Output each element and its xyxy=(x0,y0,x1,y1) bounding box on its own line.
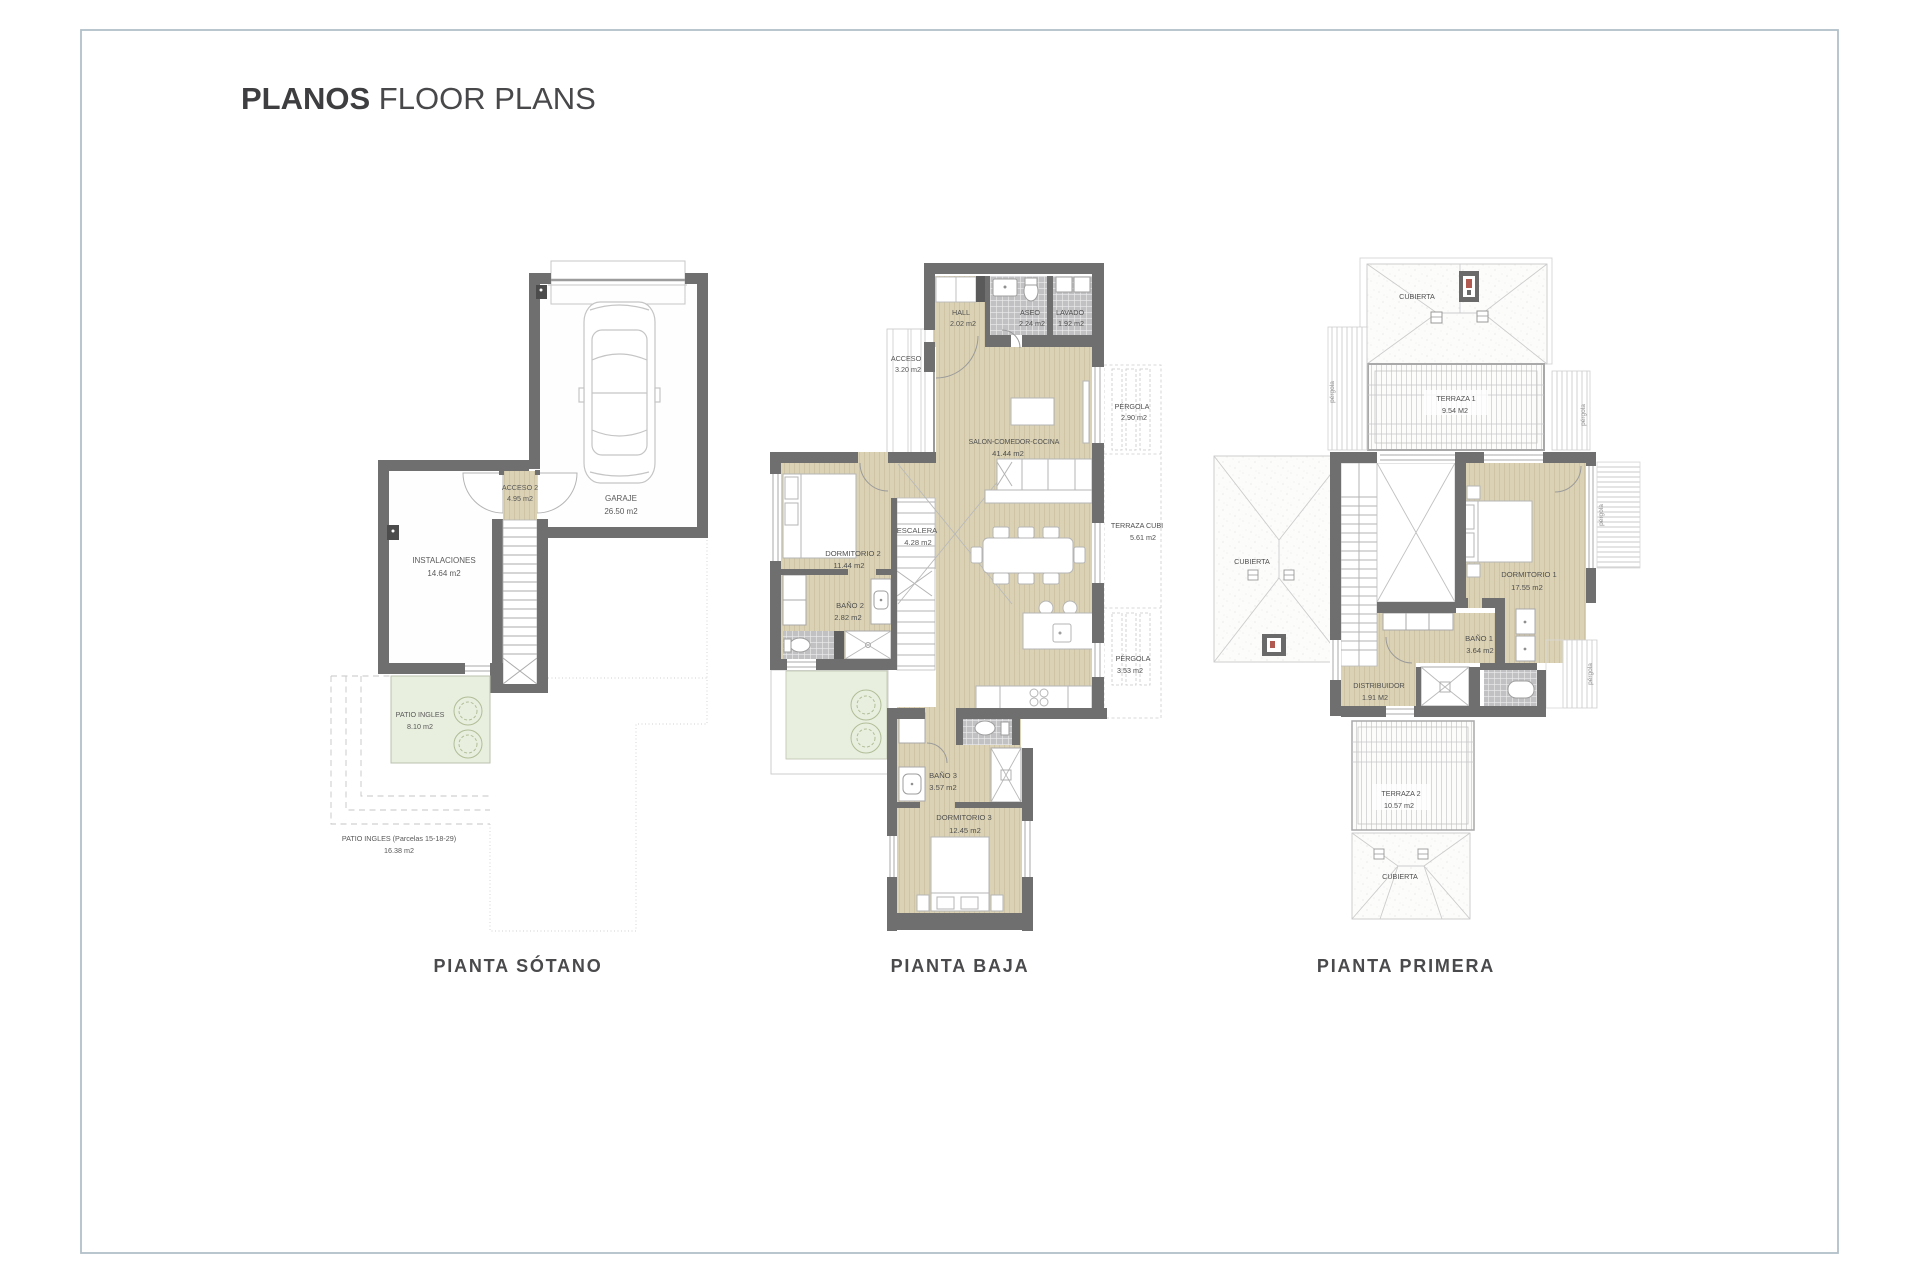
svg-text:12.45 m2: 12.45 m2 xyxy=(949,826,981,835)
svg-text:DORMITORIO 1: DORMITORIO 1 xyxy=(1501,570,1557,579)
svg-text:pérgola: pérgola xyxy=(1598,504,1605,526)
svg-text:3.53 m2: 3.53 m2 xyxy=(1117,666,1143,675)
svg-text:2.90 m2: 2.90 m2 xyxy=(1121,413,1147,422)
svg-text:PIANTA BAJA: PIANTA BAJA xyxy=(891,956,1030,976)
svg-text:9.54 M2: 9.54 M2 xyxy=(1442,406,1468,415)
svg-text:DORMITORIO 3: DORMITORIO 3 xyxy=(936,813,992,822)
svg-text:41.44 m2: 41.44 m2 xyxy=(992,449,1024,458)
svg-text:TERRAZA 2: TERRAZA 2 xyxy=(1381,789,1420,798)
svg-text:PIANTA SÓTANO: PIANTA SÓTANO xyxy=(433,955,602,976)
svg-text:BAÑO 3: BAÑO 3 xyxy=(929,771,957,780)
svg-text:INSTALACIONES: INSTALACIONES xyxy=(412,556,475,565)
svg-text:BAÑO 2: BAÑO 2 xyxy=(836,601,864,610)
svg-text:2.82 m2: 2.82 m2 xyxy=(834,613,861,622)
svg-text:10.57 m2: 10.57 m2 xyxy=(1384,801,1414,810)
svg-text:2.02 m2: 2.02 m2 xyxy=(950,319,976,328)
svg-text:GARAJE: GARAJE xyxy=(605,494,637,503)
svg-text:DISTRIBUIDOR: DISTRIBUIDOR xyxy=(1353,681,1405,690)
svg-text:pérgola: pérgola xyxy=(1587,663,1594,685)
svg-text:CUBIERTA: CUBIERTA xyxy=(1382,872,1418,881)
svg-text:1.92 m2: 1.92 m2 xyxy=(1058,319,1084,328)
svg-text:ACCESO 2: ACCESO 2 xyxy=(502,483,538,492)
svg-text:PÉRGOLA: PÉRGOLA xyxy=(1116,654,1151,663)
svg-text:BAÑO 1: BAÑO 1 xyxy=(1465,634,1493,643)
svg-text:PATIO INGLES: PATIO INGLES xyxy=(396,710,445,719)
svg-text:8.10 m2: 8.10 m2 xyxy=(407,722,433,731)
svg-text:SALON-COMEDOR-COCINA: SALON-COMEDOR-COCINA xyxy=(969,439,1060,446)
svg-text:2.24 m2: 2.24 m2 xyxy=(1019,319,1045,328)
svg-text:CUBIERTA: CUBIERTA xyxy=(1399,292,1435,301)
svg-text:3.20 m2: 3.20 m2 xyxy=(895,365,921,374)
svg-text:PIANTA PRIMERA: PIANTA PRIMERA xyxy=(1317,956,1495,976)
svg-text:3.64 m2: 3.64 m2 xyxy=(1466,646,1493,655)
svg-text:ESCALERA: ESCALERA xyxy=(897,526,938,535)
svg-text:DORMITORIO 2: DORMITORIO 2 xyxy=(825,549,881,558)
svg-text:16.38 m2: 16.38 m2 xyxy=(384,846,414,855)
svg-text:PLANOS FLOOR PLANS: PLANOS FLOOR PLANS xyxy=(241,81,596,116)
svg-text:3.57 m2: 3.57 m2 xyxy=(929,783,956,792)
svg-text:pérgola: pérgola xyxy=(1580,404,1587,426)
svg-text:TERRAZA 1: TERRAZA 1 xyxy=(1436,394,1475,403)
svg-text:HALL: HALL xyxy=(952,308,970,317)
svg-text:11.44 m2: 11.44 m2 xyxy=(833,561,864,570)
svg-text:LAVADO: LAVADO xyxy=(1056,308,1085,317)
svg-text:26.50 m2: 26.50 m2 xyxy=(604,507,638,516)
svg-text:TERRAZA CUBI: TERRAZA CUBI xyxy=(1111,521,1163,530)
svg-text:17.55 m2: 17.55 m2 xyxy=(1511,583,1543,592)
svg-text:pérgola: pérgola xyxy=(1329,381,1336,403)
svg-text:CUBIERTA: CUBIERTA xyxy=(1234,557,1270,566)
svg-text:4.95 m2: 4.95 m2 xyxy=(507,494,533,503)
svg-text:ACCESO: ACCESO xyxy=(891,354,922,363)
svg-text:14.64 m2: 14.64 m2 xyxy=(427,569,461,578)
svg-text:PATIO INGLES (Parcelas 15-18-2: PATIO INGLES (Parcelas 15-18-29) xyxy=(342,834,456,843)
svg-text:4.28 m2: 4.28 m2 xyxy=(904,538,931,547)
svg-text:ASEO: ASEO xyxy=(1020,308,1040,317)
svg-text:5.61 m2: 5.61 m2 xyxy=(1130,533,1156,542)
svg-text:PÉRGOLA: PÉRGOLA xyxy=(1115,402,1150,411)
svg-text:1.91 M2: 1.91 M2 xyxy=(1362,693,1388,702)
